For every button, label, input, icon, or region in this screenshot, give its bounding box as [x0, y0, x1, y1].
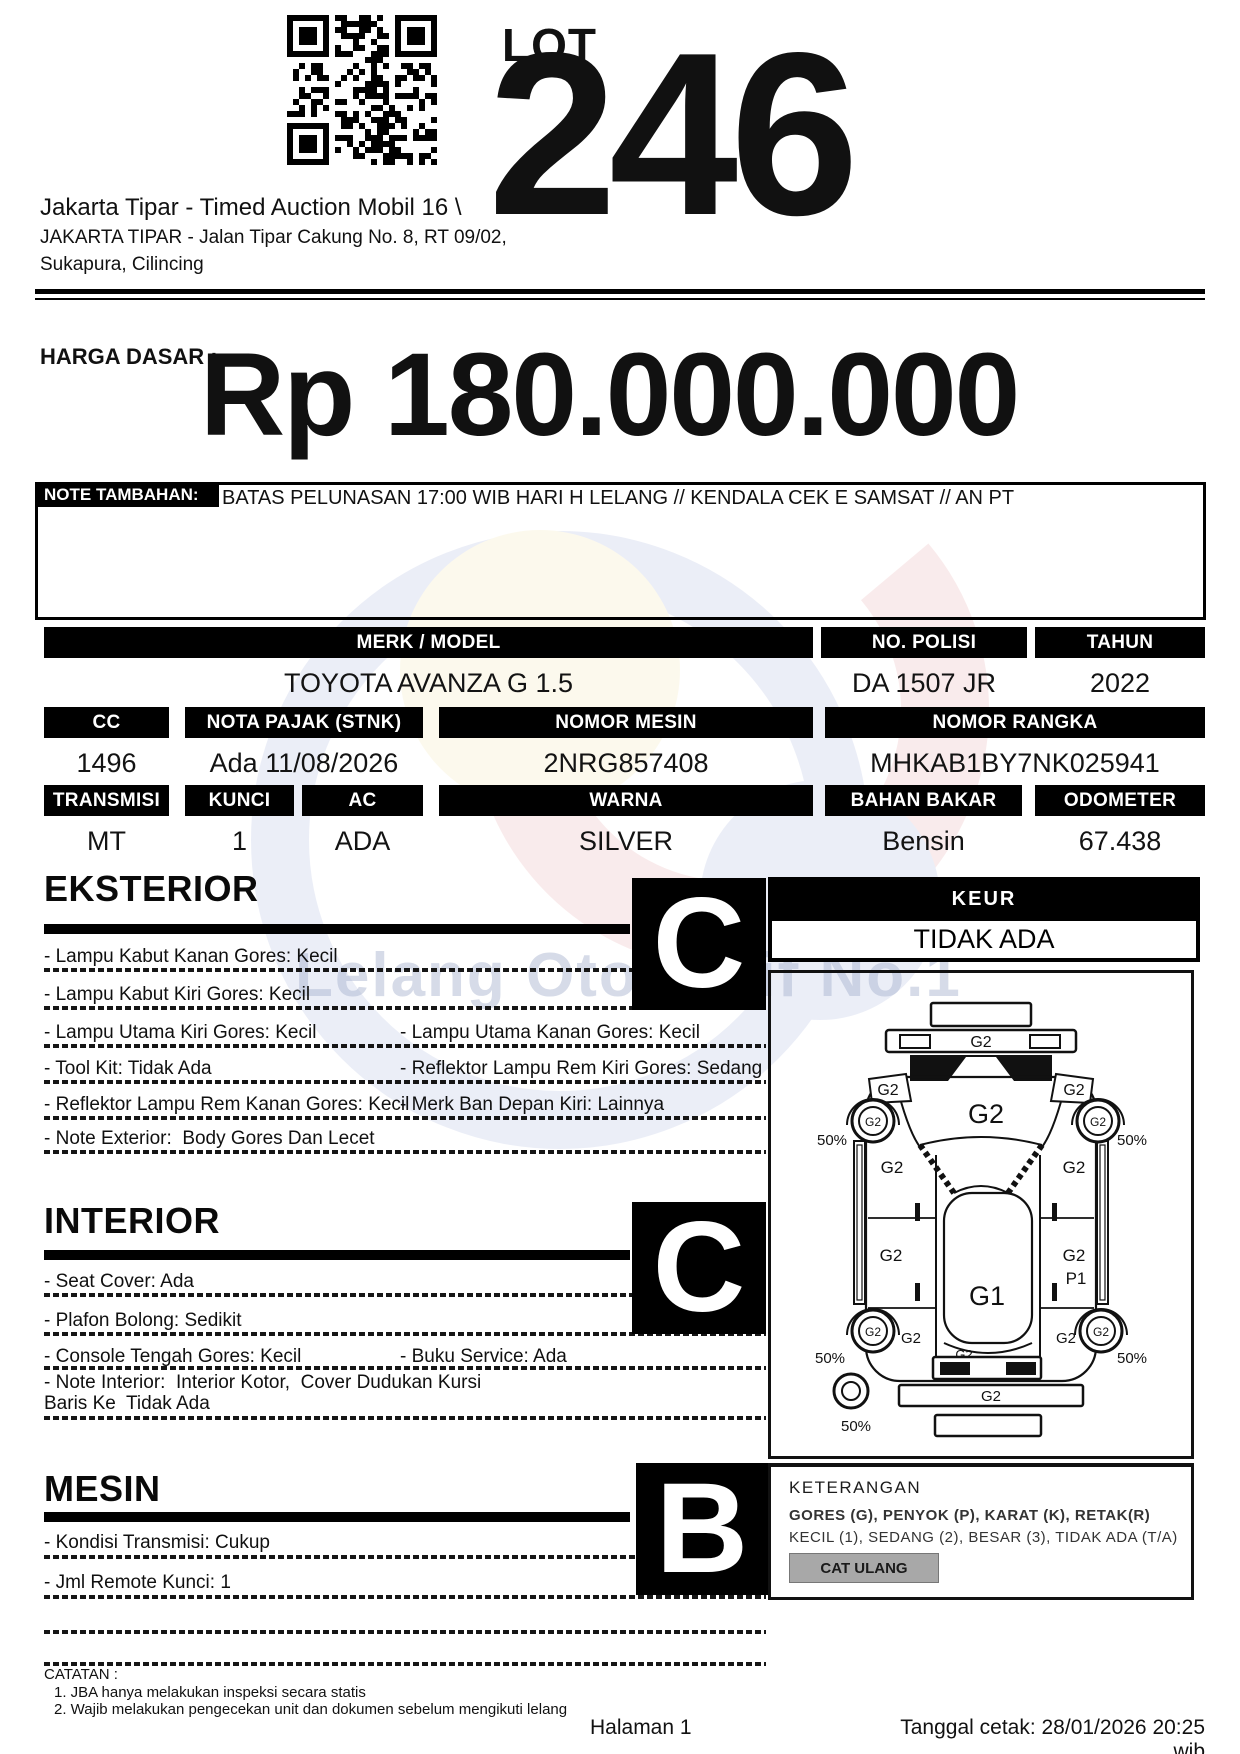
grade-badge-mesin: B [636, 1463, 768, 1595]
page-number: Halaman 1 [590, 1716, 692, 1740]
list-item: - Kondisi Transmisi: Cukup [44, 1532, 270, 1553]
lot-number: 246 [488, 38, 851, 233]
note-label: NOTE TAMBAHAN: [35, 482, 219, 507]
wheel-rear-right: G2 [1075, 1309, 1127, 1352]
header-bahan-bakar: BAHAN BAKAR [825, 785, 1022, 816]
keur-value: TIDAK ADA [772, 921, 1196, 958]
value-transmisi: MT [44, 824, 169, 858]
pct-front-right: 50% [1117, 1132, 1147, 1149]
svg-text:G2: G2 [865, 1115, 881, 1129]
base-price-label: HARGA DASAR : [40, 344, 218, 370]
header-transmisi: TRANSMISI [44, 785, 169, 816]
list-item: - Note Exterior: Body Gores Dan Lecet [44, 1128, 375, 1149]
value-no-polisi: DA 1507 JR [821, 666, 1027, 700]
header-divider [35, 289, 1205, 300]
value-merk-model: TOYOTA AVANZA G 1.5 [44, 666, 813, 700]
pct-spare: 50% [841, 1418, 871, 1435]
keterangan-title: KETERANGAN [789, 1478, 921, 1498]
header-odometer: ODOMETER [1035, 785, 1205, 816]
side-rear-right-code: G2 [1056, 1330, 1076, 1347]
eksterior-underline [44, 924, 630, 934]
header-warna: WARNA [439, 785, 813, 816]
list-item: - Plafon Bolong: Sedikit [44, 1310, 242, 1331]
list-item: - Reflektor Lampu Rem Kanan Gores: Kecil [44, 1094, 409, 1115]
header-tahun: TAHUN [1035, 627, 1205, 658]
list-item: - Lampu Kabut Kanan Gores: Kecil [44, 946, 338, 967]
header-nomor-mesin: NOMOR MESIN [439, 707, 813, 738]
qr-code [287, 15, 437, 165]
pct-rear-right: 50% [1117, 1350, 1147, 1367]
value-nota-pajak: Ada 11/08/2026 [185, 746, 423, 780]
list-item: - Tool Kit: Tidak Ada [44, 1058, 212, 1079]
quarter-right-code: G2 [1063, 1246, 1086, 1265]
rear-bumper-code: G2 [981, 1388, 1001, 1405]
door-front-right-code: G2 [1063, 1158, 1086, 1177]
list-item: - Console Tengah Gores: Kecil [44, 1346, 301, 1367]
wheel-rear-left: G2 [847, 1309, 899, 1352]
list-item: - Lampu Utama Kiri Gores: Kecil [44, 1022, 316, 1043]
keterangan-line1: GORES (G), PENYOK (P), KARAT (K), RETAK(… [789, 1507, 1150, 1524]
value-ac: ADA [302, 824, 423, 858]
list-item: - Buku Service: Ada [400, 1346, 567, 1367]
catatan-item: 1. JBA hanya melakukan inspeksi secara s… [54, 1684, 366, 1701]
auction-title: Jakarta Tipar - Timed Auction Mobil 16 \ [40, 194, 462, 222]
section-title-interior: INTERIOR [44, 1200, 220, 1242]
list-item: - Note Interior: Interior Kotor, Cover D… [44, 1372, 494, 1414]
keur-label: KEUR [768, 877, 1200, 921]
print-date: Tanggal cetak: 28/01/2026 20:25 wib [880, 1716, 1205, 1754]
value-tahun: 2022 [1035, 666, 1205, 700]
hood-code: G2 [968, 1099, 1004, 1129]
pct-rear-left: 50% [815, 1350, 845, 1367]
value-kunci: 1 [185, 824, 294, 858]
value-nomor-mesin: 2NRG857408 [439, 746, 813, 780]
header-nota-pajak: NOTA PAJAK (STNK) [185, 707, 423, 738]
value-bahan-bakar: Bensin [825, 824, 1022, 858]
roof-code: G1 [969, 1281, 1005, 1311]
fender-right-code: G2 [1063, 1082, 1084, 1099]
header-merk-model: MERK / MODEL [44, 627, 813, 658]
svg-text:G2: G2 [1093, 1325, 1109, 1339]
spare-tire: 50% [834, 1374, 871, 1435]
section-title-mesin: MESIN [44, 1468, 161, 1510]
interior-underline [44, 1250, 630, 1260]
header-ac: AC [302, 785, 423, 816]
cat-ulang-badge: CAT ULANG [789, 1553, 939, 1583]
wheel-front-left: G2 [847, 1099, 899, 1142]
value-odometer: 67.438 [1035, 824, 1205, 858]
value-nomor-rangka: MHKAB1BY7NK025941 [825, 746, 1205, 780]
side-rear-left-code: G2 [901, 1330, 921, 1347]
auction-lot-sheet: Lelang Otomotif No.1 LOT 246 Jakarta Tip… [0, 0, 1240, 1754]
header-no-polisi: NO. POLISI [821, 627, 1027, 658]
list-item: - Jml Remote Kunci: 1 [44, 1572, 231, 1593]
value-warna: SILVER [439, 824, 813, 858]
keterangan-line2: KECIL (1), SEDANG (2), BESAR (3), TIDAK … [789, 1529, 1178, 1546]
door-front-left-code: G2 [881, 1158, 904, 1177]
header-cc: CC [44, 707, 169, 738]
list-item: - Seat Cover: Ada [44, 1271, 194, 1292]
catatan-item: 2. Wajib melakukan pengecekan unit dan d… [54, 1701, 567, 1718]
damage-diagram-box: G2 G2 G2 G2 G1 [768, 970, 1194, 1459]
list-item: - Merk Ban Depan Kiri: Lainnya [400, 1094, 664, 1115]
car-top-view-diagram: G2 G2 G2 G2 G1 [771, 973, 1191, 1456]
header-kunci: KUNCI [185, 785, 294, 816]
auction-address-line2: Sukapura, Cilincing [40, 254, 204, 276]
auction-address-line1: JAKARTA TIPAR - Jalan Tipar Cakung No. 8… [40, 227, 507, 249]
header-nomor-rangka: NOMOR RANGKA [825, 707, 1205, 738]
keterangan-box: KETERANGAN GORES (G), PENYOK (P), KARAT … [768, 1463, 1194, 1600]
pct-front-left: 50% [817, 1132, 847, 1149]
quarter-left-code: G2 [880, 1246, 903, 1265]
catatan-title: CATATAN : [44, 1666, 118, 1683]
mesin-underline [44, 1512, 630, 1522]
grade-badge-eksterior: C [632, 878, 766, 1010]
front-bumper-code: G2 [970, 1034, 991, 1051]
note-text: BATAS PELUNASAN 17:00 WIB HARI H LELANG … [222, 487, 1197, 510]
value-cc: 1496 [44, 746, 169, 780]
svg-text:G2: G2 [1090, 1115, 1106, 1129]
list-item: - Reflektor Lampu Rem Kiri Gores: Sedang [400, 1058, 762, 1079]
base-price-value: Rp 180.000.000 [200, 336, 1018, 454]
list-item: - Lampu Kabut Kiri Gores: Kecil [44, 984, 310, 1005]
section-title-eksterior: EKSTERIOR [44, 868, 259, 910]
grade-badge-interior: C [632, 1202, 766, 1334]
keur-panel: KEUR TIDAK ADA [768, 877, 1200, 962]
list-item: - Lampu Utama Kanan Gores: Kecil [400, 1022, 700, 1043]
quarter-right-dent-code: P1 [1066, 1269, 1087, 1288]
svg-text:G2: G2 [865, 1325, 881, 1339]
fender-left-code: G2 [877, 1082, 898, 1099]
